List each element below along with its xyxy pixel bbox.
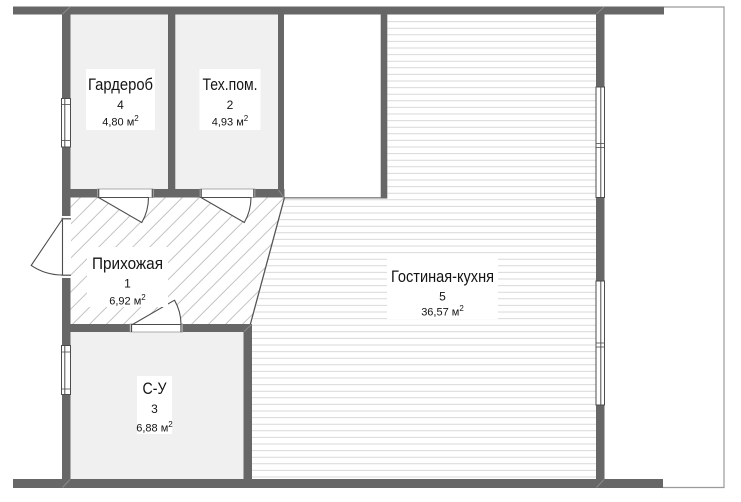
- svg-text:Гостиная-кухня: Гостиная-кухня: [391, 268, 494, 286]
- svg-text:4,80 м2: 4,80 м2: [102, 114, 139, 128]
- svg-text:5: 5: [439, 290, 446, 304]
- svg-text:1: 1: [124, 277, 131, 291]
- svg-text:4,93 м2: 4,93 м2: [212, 114, 249, 128]
- svg-text:Прихожая: Прихожая: [92, 255, 163, 273]
- svg-text:2: 2: [227, 98, 234, 112]
- svg-text:Тех.пом.: Тех.пом.: [203, 76, 258, 94]
- svg-text:Гардероб: Гардероб: [88, 76, 153, 94]
- svg-text:С-У: С-У: [143, 380, 167, 398]
- svg-text:6,88 м2: 6,88 м2: [136, 420, 173, 434]
- svg-text:6,92 м2: 6,92 м2: [109, 293, 146, 307]
- svg-text:4: 4: [117, 98, 124, 112]
- svg-text:3: 3: [151, 402, 158, 416]
- svg-text:36,57 м2: 36,57 м2: [421, 304, 464, 318]
